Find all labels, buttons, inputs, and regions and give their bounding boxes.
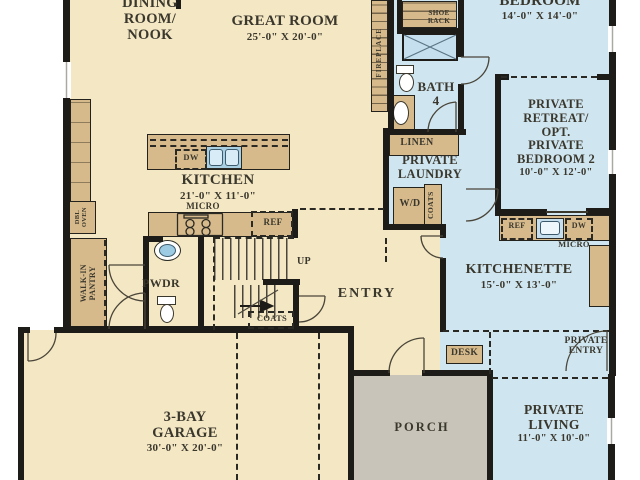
pwdr-label: PWDR <box>137 277 185 290</box>
door-bedroom <box>461 57 489 84</box>
linen-label: LINEN <box>391 137 443 148</box>
coats-laundry-label: COATS <box>427 187 435 223</box>
door-kitchenette <box>421 236 443 258</box>
entry-label: ENTRY <box>330 286 404 301</box>
kitchenette-label: KITCHENETTE <box>449 262 589 277</box>
door-hall-garage <box>109 293 145 329</box>
porch-label: PORCH <box>388 421 456 435</box>
bedroom-dims: 14'-0" X 14'-0" <box>480 10 600 22</box>
kitchen-micro-label: MICRO <box>181 202 225 212</box>
fireplace-label: FIREPLACE <box>376 9 384 97</box>
door-laundry-hall <box>466 189 498 221</box>
kitchen-label: KITCHEN <box>158 172 278 189</box>
private-laundry-label: PRIVATE LAUNDRY <box>378 154 482 182</box>
great-room-dims: 25'-0" X 20'-0" <box>225 31 345 43</box>
private-retreat-label: PRIVATE RETREAT/ OPT. PRIVATE BEDROOM 2 … <box>499 98 613 178</box>
great-room-label: GREAT ROOM <box>215 13 355 30</box>
private-living-label: PRIVATE LIVING 11'-0" X 10'-0" <box>504 403 604 444</box>
shoe-rack-label: SHOE RACK <box>420 9 458 26</box>
bath4-label: BATH 4 <box>412 80 460 109</box>
kitchenette-dw-label: DW <box>567 222 591 231</box>
bedroom-label: BEDROOM <box>480 0 600 10</box>
kitchenette-ref-label: REF <box>503 222 531 231</box>
shower-x <box>404 35 456 59</box>
double-oven-label: DBL OVEN <box>74 202 88 232</box>
stove <box>178 214 223 236</box>
kitchenette-micro-label: MICRO <box>550 240 598 249</box>
desk-label: DESK <box>446 348 483 358</box>
island-dishwasher-label: DW <box>177 153 205 162</box>
private-entry-label: PRIVATE ENTRY <box>558 337 614 357</box>
door-coats-entry <box>299 296 325 322</box>
door-garage-service <box>28 333 56 361</box>
stairs-cut-line <box>238 290 278 314</box>
door-front-entry <box>389 338 424 373</box>
floor-plan: DINING ROOM/ NOOK GREAT ROOM 25'-0" X 20… <box>0 0 640 480</box>
private-living-dims: 11'-0" X 10'-0" <box>504 433 604 445</box>
garage-label: 3-BAY GARAGE 30'-0" X 20'-0" <box>128 410 242 454</box>
garage-dims: 30'-0" X 20'-0" <box>128 442 242 454</box>
private-retreat-dims: 10'-0" X 12'-0" <box>499 167 613 179</box>
washer-dryer-label: W/D <box>393 198 427 209</box>
dining-room-label: DINING ROOM/ NOOK <box>102 0 198 44</box>
stairs-up-label: UP <box>290 256 318 267</box>
kitchenette-dims: 15'-0" X 13'-0" <box>459 279 579 291</box>
coats-entry-label: COATS <box>250 314 294 323</box>
kitchen-ref-label: REF <box>254 218 292 228</box>
walk-in-pantry-label: WALK-IN PANTRY <box>79 245 97 321</box>
